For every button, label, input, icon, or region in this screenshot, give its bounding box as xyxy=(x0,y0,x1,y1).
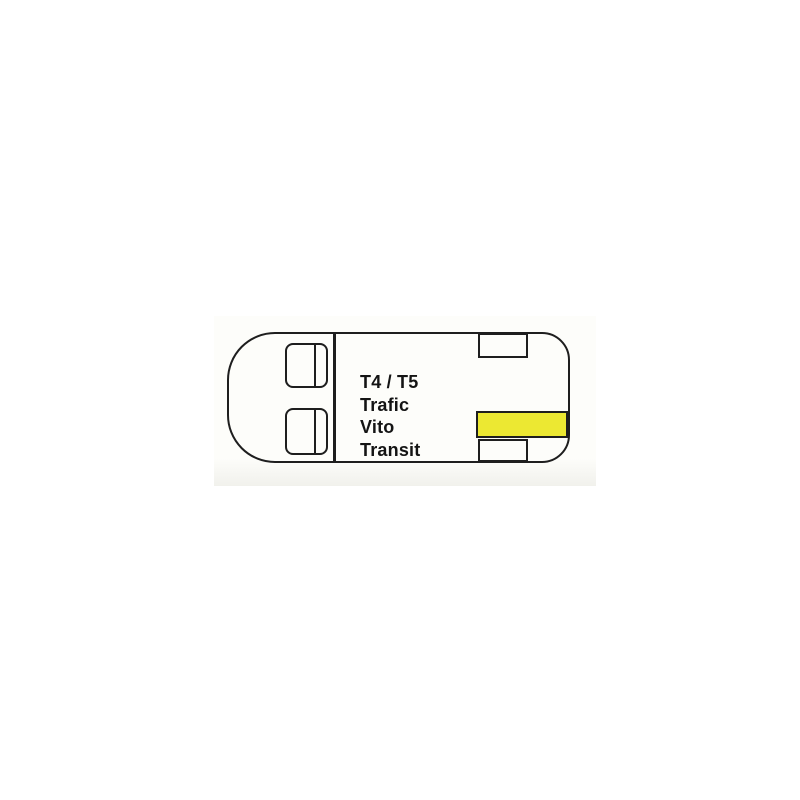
vehicle-label-t4-t5: T4 / T5 xyxy=(360,371,420,394)
rear-wheel-arch-top xyxy=(478,333,528,358)
product-diagram-image: T4 / T5 Trafic Vito Transit xyxy=(0,0,800,800)
seat-back-line xyxy=(314,345,317,386)
seat-back-line xyxy=(314,410,317,453)
driver-seat xyxy=(285,343,328,388)
passenger-seat xyxy=(285,408,328,455)
vehicle-model-labels: T4 / T5 Trafic Vito Transit xyxy=(360,371,420,461)
rear-wheel-arch-bottom xyxy=(478,439,528,462)
vehicle-label-transit: Transit xyxy=(360,439,420,462)
highlighted-part-location xyxy=(476,411,568,438)
vehicle-label-trafic: Trafic xyxy=(360,394,420,417)
vehicle-label-vito: Vito xyxy=(360,416,420,439)
cab-divider-line xyxy=(333,334,336,461)
